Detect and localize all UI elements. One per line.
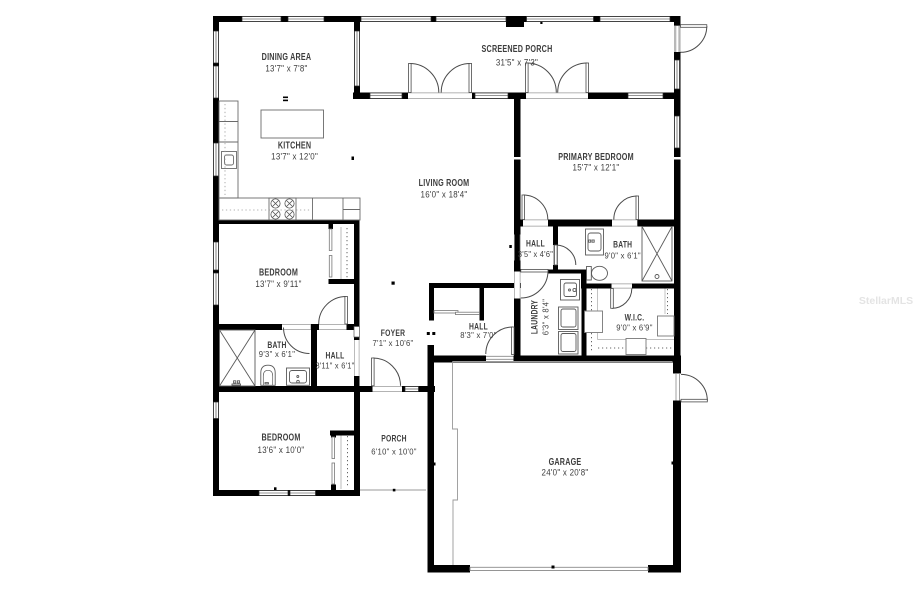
svg-text:DINING AREA: DINING AREA	[262, 51, 312, 62]
svg-text:FOYER: FOYER	[381, 328, 405, 338]
svg-text:9'0" x 6'1": 9'0" x 6'1"	[605, 251, 641, 260]
svg-text:6'3" x 8'4": 6'3" x 8'4"	[541, 299, 550, 335]
svg-text:13'7" x 9'11": 13'7" x 9'11"	[255, 279, 301, 290]
svg-text:3'5" x 4'6": 3'5" x 4'6"	[518, 250, 553, 259]
svg-text:W.I.C.: W.I.C.	[625, 312, 645, 322]
svg-text:SCREENED PORCH: SCREENED PORCH	[482, 43, 553, 54]
svg-text:KITCHEN: KITCHEN	[278, 139, 311, 150]
svg-text:8'3" x 7'0": 8'3" x 7'0"	[460, 331, 496, 340]
svg-text:PRIMARY BEDROOM: PRIMARY BEDROOM	[558, 151, 634, 162]
svg-text:BATH: BATH	[267, 340, 286, 350]
svg-text:HALL: HALL	[526, 238, 545, 248]
svg-text:31'5" x 7'3": 31'5" x 7'3"	[496, 57, 538, 68]
svg-text:9'3" x 6'1": 9'3" x 6'1"	[259, 350, 295, 359]
svg-text:HALL: HALL	[326, 350, 345, 360]
svg-text:16'0" x 18'4": 16'0" x 18'4"	[421, 189, 468, 200]
svg-text:24'0" x 20'8": 24'0" x 20'8"	[542, 467, 589, 478]
svg-text:13'6" x 10'0": 13'6" x 10'0"	[258, 445, 305, 456]
svg-text:StellarMLS: StellarMLS	[859, 295, 913, 307]
svg-text:13'7" x 7'8": 13'7" x 7'8"	[265, 63, 307, 74]
svg-text:BEDROOM: BEDROOM	[261, 431, 300, 442]
svg-text:BATH: BATH	[613, 240, 632, 250]
svg-text:LIVING ROOM: LIVING ROOM	[419, 177, 470, 188]
svg-text:PORCH: PORCH	[381, 433, 407, 443]
svg-text:15'7" x 12'1": 15'7" x 12'1"	[573, 162, 620, 173]
svg-text:3'11" x 6'1": 3'11" x 6'1"	[315, 361, 354, 370]
svg-text:13'7" x 12'0": 13'7" x 12'0"	[271, 151, 318, 162]
svg-text:GARAGE: GARAGE	[549, 456, 582, 467]
svg-text:LAUNDRY: LAUNDRY	[529, 300, 539, 335]
svg-text:9'0" x 6'9": 9'0" x 6'9"	[616, 323, 652, 332]
svg-text:7'1" x 10'6": 7'1" x 10'6"	[373, 339, 414, 348]
svg-text:BEDROOM: BEDROOM	[259, 266, 298, 277]
svg-text:6'10" x 10'0": 6'10" x 10'0"	[371, 447, 416, 456]
